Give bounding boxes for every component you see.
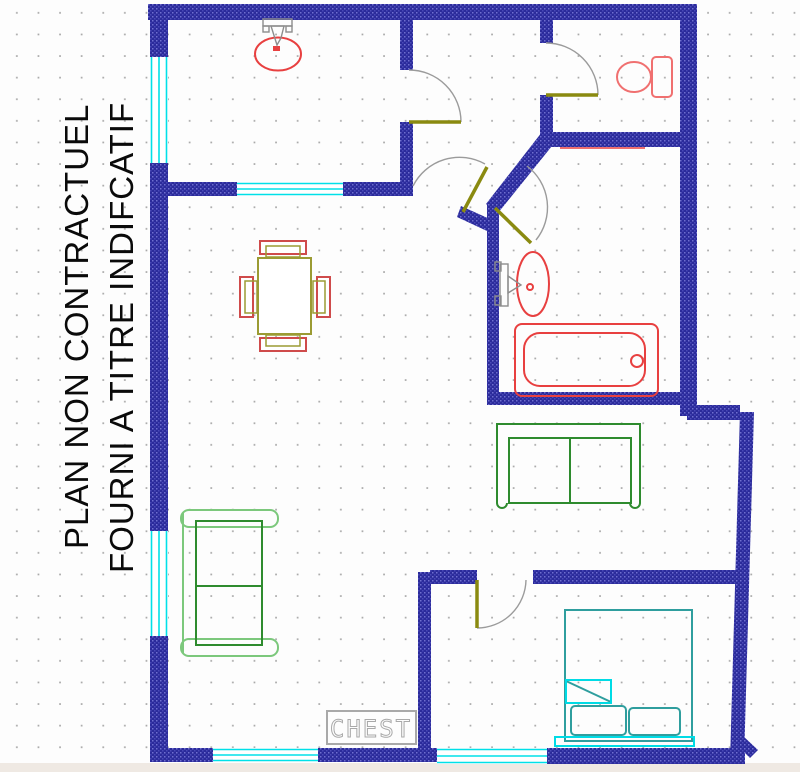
chair-bottom	[260, 338, 306, 351]
wall-bottom-a	[160, 748, 213, 762]
disclaimer-line1: PLAN NON CONTRACTUEL	[58, 104, 95, 549]
wall-interior1-lower	[400, 122, 413, 196]
window-bottom-right	[437, 748, 547, 764]
sink-drain-top	[273, 46, 280, 51]
footer-strip	[0, 763, 800, 772]
wall-interior1-upper	[400, 4, 413, 70]
window-left-lower	[150, 531, 168, 636]
wall-right-upper	[680, 4, 697, 416]
window-bottom-left	[213, 748, 318, 762]
chair-top	[260, 241, 306, 254]
chair-left	[240, 277, 253, 317]
wall-room1-bottom-a	[150, 182, 237, 196]
window-left-upper	[150, 57, 168, 163]
wall-wc-left-upper	[540, 4, 553, 43]
disclaimer-line2: FOURNI A TITRE INDIFCATIF	[103, 102, 140, 573]
dining-table	[258, 258, 311, 334]
wall-top	[148, 4, 693, 20]
floor-plan-svg: CHEST PLAN NON CONTRACTUEL FOURNI A TITR…	[0, 0, 800, 772]
wall-wc-bottom	[540, 132, 690, 147]
wall-left-upper	[150, 4, 168, 59]
chair-right	[317, 277, 330, 317]
wall-interior2	[418, 572, 431, 762]
chest-label: CHEST	[330, 715, 412, 743]
floor-plan-image: CHEST PLAN NON CONTRACTUEL FOURNI A TITR…	[0, 0, 800, 772]
wall-bedroom-top-a	[430, 570, 477, 584]
wall-bottom-c	[547, 748, 745, 764]
chest: CHEST	[327, 711, 416, 744]
wall-bedroom-top-b	[533, 570, 737, 584]
wall-left-middle	[150, 162, 168, 532]
wall-right-step	[687, 405, 740, 420]
window-room1	[237, 182, 343, 196]
wall-left-lower	[150, 635, 168, 762]
